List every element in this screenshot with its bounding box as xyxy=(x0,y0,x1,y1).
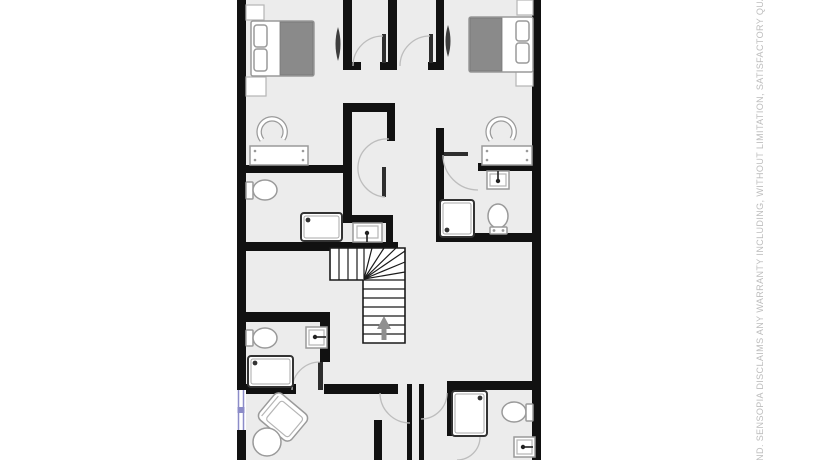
nightstand xyxy=(517,0,533,15)
floor-plan-page: NY KIND. SENSOPIA DISCLAIMS ANY WARRANTY… xyxy=(0,0,840,460)
toilet xyxy=(246,328,277,348)
sink xyxy=(306,327,327,348)
shower xyxy=(301,213,342,241)
bed xyxy=(469,17,533,72)
sink xyxy=(514,437,535,457)
sink xyxy=(353,223,382,242)
disclaimer-watermark: NY KIND. SENSOPIA DISCLAIMS ANY WARRANTY… xyxy=(752,0,768,460)
toilet xyxy=(488,204,508,234)
toilet xyxy=(246,180,277,200)
bathroom3-door-leaf xyxy=(318,362,323,390)
bed xyxy=(251,21,314,76)
closet2-door-leaf xyxy=(429,34,433,63)
desk xyxy=(250,146,308,165)
nightstand xyxy=(246,5,264,20)
sink xyxy=(487,171,509,189)
shower xyxy=(452,391,487,436)
floor-plan-drawing xyxy=(0,0,840,460)
shower xyxy=(440,200,474,237)
desk xyxy=(482,146,532,165)
window xyxy=(237,390,246,430)
toilet xyxy=(502,402,533,422)
nightstand xyxy=(246,77,266,96)
shower xyxy=(248,356,293,387)
bathroom2-door-leaf xyxy=(444,152,468,156)
stool xyxy=(253,428,281,456)
closet1-door-leaf xyxy=(382,34,386,63)
bathroom1-door-leaf xyxy=(382,167,386,197)
